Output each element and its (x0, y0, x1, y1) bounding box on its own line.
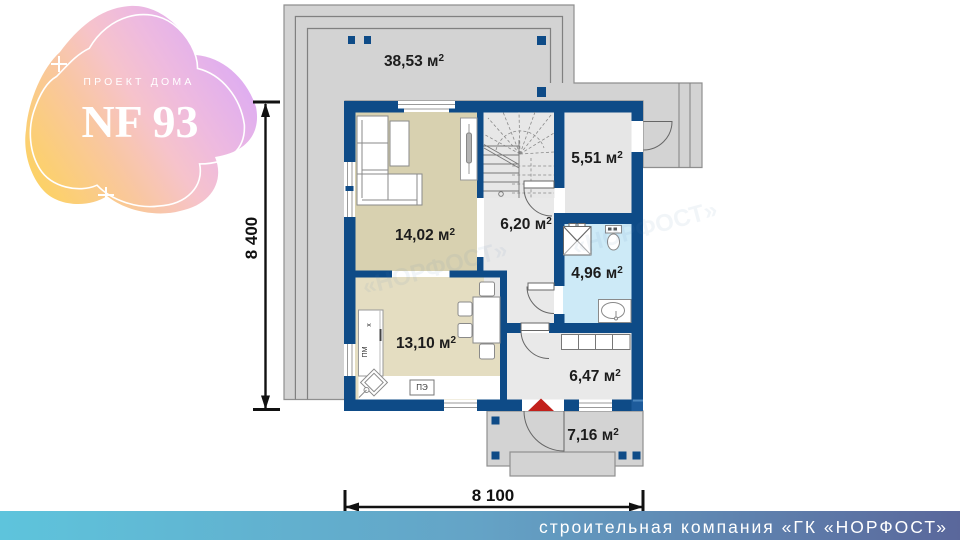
svg-text:NF 93: NF 93 (81, 96, 198, 147)
svg-text:строительная компания «ГК «НОР: строительная компания «ГК «НОРФОСТ» (539, 517, 948, 537)
svg-text:4,96 м2: 4,96 м2 (571, 265, 623, 282)
svg-text:6,47 м2: 6,47 м2 (569, 368, 621, 385)
svg-text:ПМ: ПМ (362, 346, 369, 357)
svg-text:14,02 м2: 14,02 м2 (395, 227, 456, 244)
svg-text:ПЭ: ПЭ (416, 383, 428, 392)
svg-text:8 400: 8 400 (242, 217, 261, 260)
svg-text:6,20 м2: 6,20 м2 (500, 216, 552, 233)
svg-text:ПРОЕКТ ДОМА: ПРОЕКТ ДОМА (83, 76, 194, 88)
svg-text:13,10 м2: 13,10 м2 (396, 335, 457, 352)
svg-text:38,53 м2: 38,53 м2 (384, 53, 445, 70)
svg-text:8 100: 8 100 (472, 486, 515, 505)
svg-text:x: x (366, 323, 373, 327)
svg-text:5,51 м2: 5,51 м2 (571, 150, 623, 167)
svg-text:7,16 м2: 7,16 м2 (567, 427, 619, 444)
